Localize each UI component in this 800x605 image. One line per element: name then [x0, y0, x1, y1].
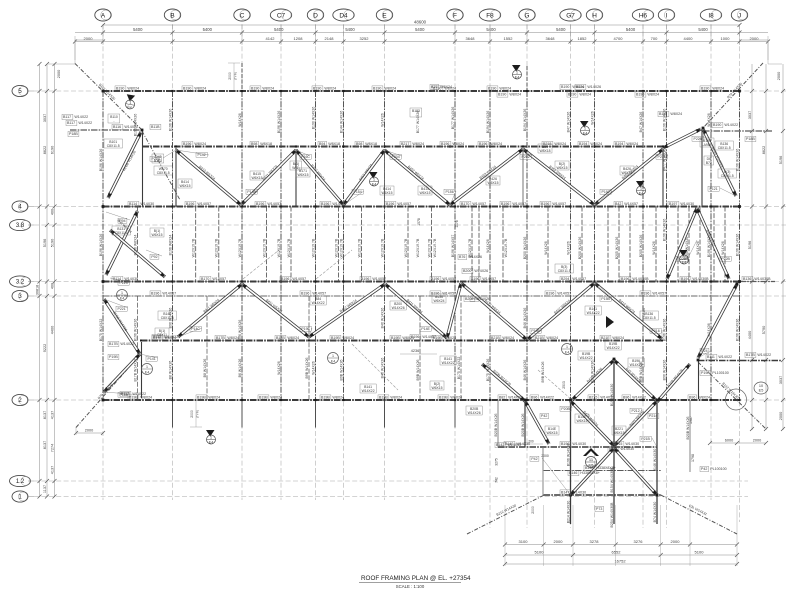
- svg-text:W14X57: W14X57: [212, 277, 226, 281]
- svg-text:P212: P212: [632, 409, 640, 413]
- svg-text:8622: 8622: [762, 146, 766, 154]
- svg-text:W6X15: W6X15: [151, 233, 162, 237]
- svg-text:B194: B194: [579, 142, 587, 146]
- svg-text:P197: P197: [602, 190, 610, 194]
- svg-text:D4: D4: [339, 12, 348, 19]
- svg-text:C8X11.5: C8X11.5: [718, 146, 731, 150]
- svg-text:B9B W14X26: B9B W14X26: [541, 361, 545, 382]
- svg-text:B19B: B19B: [259, 396, 268, 400]
- svg-text:B196 W14X26: B196 W14X26: [133, 114, 137, 137]
- svg-text:W12X19.7B: W12X19.7B: [427, 238, 431, 257]
- svg-text:B196 W14X36: B196 W14X36: [735, 319, 739, 342]
- svg-text:2000: 2000: [541, 454, 549, 458]
- svg-text:W8X18: W8X18: [365, 142, 377, 146]
- svg-text:W14X22: W14X22: [362, 389, 375, 393]
- svg-text:B96 W14X26: B96 W14X26: [238, 320, 242, 341]
- svg-text:W14X26: W14X26: [707, 113, 711, 126]
- svg-text:W14X57: W14X57: [292, 277, 306, 281]
- svg-text:E4: E4: [639, 192, 643, 196]
- svg-text:B46 W14X26: B46 W14X26: [523, 308, 527, 329]
- svg-text:B9B W14X26: B9B W14X26: [339, 359, 343, 380]
- svg-text:8137: 8137: [43, 441, 47, 449]
- svg-text:W8X24: W8X24: [287, 336, 299, 340]
- svg-text:B9B W14X26: B9B W14X26: [416, 359, 420, 380]
- svg-text:1798: 1798: [691, 454, 695, 462]
- svg-text:B196 W14X57: B196 W14X57: [451, 235, 455, 258]
- svg-text:5400: 5400: [486, 27, 496, 32]
- svg-text:B477 W14X26: B477 W14X26: [662, 149, 666, 172]
- svg-text:P204: P204: [392, 155, 400, 159]
- svg-text:B112: B112: [153, 335, 161, 339]
- svg-text:W14X26: W14X26: [468, 255, 482, 259]
- svg-text:I8: I8: [708, 12, 714, 19]
- svg-text:B8 W14X26: B8 W14X26: [168, 361, 172, 380]
- svg-text:B21E: B21E: [601, 336, 610, 340]
- svg-text:1178: 1178: [455, 220, 459, 227]
- svg-text:B205 W14X26: B205 W14X26: [615, 237, 619, 260]
- svg-text:W14X22: W14X22: [757, 353, 771, 357]
- svg-text:W12X19.7B: W12X19.7B: [404, 238, 408, 257]
- svg-text:B111: B111: [707, 355, 715, 359]
- svg-text:W14X26: W14X26: [486, 239, 490, 252]
- svg-text:B196: B196: [321, 202, 329, 206]
- svg-text:W8X24: W8X24: [712, 87, 724, 91]
- svg-text:W14X30: W14X30: [625, 442, 639, 446]
- svg-text:P156: P156: [446, 190, 454, 194]
- svg-text:W14X26: W14X26: [508, 396, 522, 400]
- svg-text:5400: 5400: [203, 27, 213, 32]
- svg-text:W8X24: W8X24: [127, 87, 139, 91]
- svg-text:B8 W14X26: B8 W14X26: [203, 359, 207, 378]
- svg-text:B154 W14X30B: B154 W14X30B: [610, 467, 614, 493]
- svg-text:W8X24: W8X24: [698, 396, 710, 400]
- svg-text:1: 1: [373, 178, 375, 182]
- svg-text:B82: B82: [499, 396, 505, 400]
- svg-text:6190: 6190: [50, 146, 54, 154]
- svg-text:B19B: B19B: [331, 336, 340, 340]
- svg-text:W12X19.7B: W12X19.7B: [192, 238, 196, 257]
- svg-text:B47 W14X26: B47 W14X26: [566, 112, 570, 133]
- svg-text:B190: B190: [701, 87, 709, 91]
- svg-text:3037: 3037: [43, 114, 47, 122]
- svg-text:B194 W14X26: B194 W14X26: [486, 111, 490, 134]
- svg-text:W8X24: W8X24: [554, 142, 566, 146]
- svg-text:4400: 4400: [748, 331, 752, 339]
- svg-text:B196: B196: [576, 85, 584, 89]
- svg-text:W14X22: W14X22: [587, 311, 600, 315]
- svg-text:1: 1: [516, 71, 518, 75]
- svg-text:W6X24: W6X24: [433, 299, 444, 303]
- svg-text:W14X57: W14X57: [572, 277, 586, 281]
- svg-text:8137: 8137: [43, 411, 47, 419]
- svg-text:B197: B197: [669, 202, 677, 206]
- svg-text:W6X15: W6X15: [576, 419, 587, 423]
- svg-text:B74 W14X30: B74 W14X30: [653, 502, 657, 523]
- svg-text:B200 W14X26: B200 W14X26: [578, 237, 582, 260]
- svg-text:3648: 3648: [466, 36, 476, 41]
- svg-text:3278: 3278: [590, 539, 600, 544]
- svg-text:B115: B115: [659, 112, 667, 116]
- svg-text:B196 W14X26: B196 W14X26: [99, 234, 103, 257]
- svg-text:B190: B190: [488, 87, 496, 91]
- svg-text:W14X57: W14X57: [162, 292, 176, 296]
- svg-text:B42: B42: [615, 202, 621, 206]
- svg-text:W8X24: W8X24: [262, 87, 274, 91]
- svg-text:P20B: P20B: [561, 407, 570, 411]
- svg-text:P14E: P14E: [421, 327, 430, 331]
- svg-text:W8X24: W8X24: [440, 85, 452, 89]
- svg-text:W12X19.7B: W12X19.7B: [433, 238, 437, 257]
- svg-text:8622: 8622: [43, 146, 47, 154]
- svg-text:B98: B98: [251, 142, 257, 146]
- svg-text:1137: 1137: [43, 485, 47, 493]
- svg-text:W8X24: W8X24: [670, 112, 682, 116]
- svg-text:1: 1: [584, 127, 586, 131]
- svg-text:W14X22: W14X22: [607, 346, 620, 350]
- svg-text:W8X24: W8X24: [444, 336, 456, 340]
- svg-text:E4: E4: [583, 132, 587, 136]
- svg-text:W14X57: W14X57: [512, 202, 526, 206]
- svg-text:B94: B94: [319, 142, 325, 146]
- svg-text:W14X57: W14X57: [624, 202, 638, 206]
- svg-text:P42: P42: [541, 414, 547, 418]
- svg-text:W8X24: W8X24: [612, 336, 624, 340]
- svg-text:W8X24: W8X24: [412, 142, 424, 146]
- svg-text:B217: B217: [401, 142, 409, 146]
- svg-text:C8X11.5: C8X11.5: [643, 316, 656, 320]
- svg-text:F8: F8: [486, 12, 494, 19]
- svg-text:B190: B190: [373, 87, 381, 91]
- svg-text:B194 W14X26: B194 W14X26: [523, 109, 527, 132]
- svg-text:B196: B196: [479, 142, 487, 146]
- svg-text:P141: P141: [148, 357, 156, 361]
- svg-text:B9B W14X26: B9B W14X26: [305, 357, 309, 378]
- svg-text:B196: B196: [361, 277, 369, 281]
- svg-text:B136: B136: [743, 277, 751, 281]
- svg-text:B21B: B21B: [491, 336, 500, 340]
- svg-text:4137: 4137: [50, 411, 54, 419]
- svg-text:W14X57: W14X57: [332, 202, 346, 206]
- svg-text:E4: E4: [145, 371, 149, 375]
- svg-text:W6X15: W6X15: [381, 191, 392, 195]
- svg-text:W14X30: W14X30: [620, 447, 634, 451]
- svg-text:B96 W14X26: B96 W14X26: [662, 360, 666, 381]
- svg-text:B200: B200: [463, 269, 471, 273]
- svg-text:P221: P221: [118, 307, 126, 311]
- svg-text:C8X11.5: C8X11.5: [115, 231, 128, 235]
- svg-text:B190: B190: [568, 93, 576, 97]
- svg-text:W14X26: W14X26: [238, 113, 242, 126]
- svg-text:B215: B215: [589, 396, 597, 400]
- svg-text:W8X18: W8X18: [328, 142, 340, 146]
- svg-text:2000: 2000: [57, 70, 61, 78]
- svg-text:B196: B196: [256, 202, 264, 206]
- svg-text:W14X57: W14X57: [267, 202, 281, 206]
- svg-text:W14X22: W14X22: [120, 342, 134, 346]
- svg-text:W14X22: W14X22: [132, 392, 146, 396]
- svg-text:B175 W14X22: B175 W14X22: [457, 357, 461, 380]
- svg-text:W8X24: W8X24: [194, 87, 206, 91]
- svg-text:P92: P92: [151, 255, 157, 259]
- svg-text:B196 W14X30: B196 W14X30: [566, 444, 570, 467]
- svg-text:B196 W8X24: B196 W8X24: [168, 235, 172, 256]
- svg-text:W14X22: W14X22: [632, 396, 646, 400]
- svg-text:B11B: B11B: [151, 125, 160, 129]
- svg-text:1: 1: [640, 187, 642, 191]
- svg-text:B47 W14X26: B47 W14X26: [639, 112, 643, 133]
- svg-text:-: -: [113, 119, 114, 123]
- svg-text:B170: B170: [201, 277, 209, 281]
- svg-text:5196: 5196: [748, 241, 752, 249]
- svg-text:W8X24: W8X24: [390, 396, 402, 400]
- svg-text:W14X57: W14X57: [397, 202, 411, 206]
- svg-text:B196 W14X36: B196 W14X36: [662, 319, 666, 342]
- svg-text:G7: G7: [566, 12, 575, 19]
- svg-text:5400: 5400: [274, 27, 284, 32]
- svg-text:5400: 5400: [556, 27, 566, 32]
- svg-text:W6X15: W6X15: [179, 184, 190, 188]
- svg-text:1: 1: [146, 365, 148, 369]
- svg-text:B196 W14X30: B196 W14X30: [610, 384, 614, 407]
- svg-text:C8X11.5: C8X11.5: [107, 144, 120, 148]
- svg-text:W14X30: W14X30: [507, 443, 521, 447]
- svg-text:W14X30: W14X30: [680, 202, 694, 206]
- svg-text:48600: 48600: [414, 19, 427, 24]
- svg-text:400: 400: [50, 283, 54, 289]
- svg-text:B98: B98: [356, 142, 362, 146]
- svg-text:W14X57: W14X57: [442, 277, 456, 281]
- svg-text:B190: B190: [498, 93, 506, 97]
- svg-text:E4: E4: [120, 297, 124, 301]
- svg-text:B17B: B17B: [746, 353, 755, 357]
- svg-text:W6X15: W6X15: [621, 171, 632, 175]
- svg-text:2148: 2148: [325, 36, 335, 41]
- svg-text:(TYP.): (TYP.): [234, 72, 238, 80]
- svg-text:P24: P24: [701, 349, 707, 353]
- svg-text:B177 W14X26: B177 W14X26: [451, 107, 455, 130]
- svg-text:B46 W14X26: B46 W14X26: [380, 308, 384, 329]
- svg-text:B147: B147: [561, 491, 569, 495]
- svg-text:W8X24: W8X24: [490, 142, 502, 146]
- svg-text:3.8: 3.8: [16, 223, 25, 229]
- svg-text:3037: 3037: [748, 111, 752, 119]
- svg-text:P223: P223: [120, 281, 128, 285]
- svg-text:W14X26: W14X26: [474, 269, 488, 273]
- svg-text:B146 W14X30: B146 W14X30: [653, 449, 657, 472]
- svg-text:W8X18: W8X18: [260, 142, 272, 146]
- svg-text:B114: B114: [129, 202, 137, 206]
- svg-text:W14X26: W14X26: [311, 361, 315, 374]
- svg-text:B116: B116: [113, 125, 121, 129]
- svg-text:3252: 3252: [360, 36, 370, 41]
- svg-text:W12X19.7B: W12X19.7B: [277, 238, 281, 257]
- svg-text:E5: E5: [759, 389, 764, 393]
- svg-text:B19: B19: [431, 85, 437, 89]
- svg-text:B72: B72: [706, 161, 712, 165]
- svg-text:B196 W14X26: B196 W14X26: [735, 149, 739, 172]
- svg-text:2000: 2000: [531, 506, 535, 514]
- svg-text:9222: 9222: [43, 344, 47, 352]
- svg-text:W14X26: W14X26: [544, 241, 548, 254]
- svg-text:3276: 3276: [634, 539, 644, 544]
- svg-text:4236: 4236: [411, 349, 419, 353]
- svg-text:W8X24: W8X24: [626, 142, 638, 146]
- svg-text:E: E: [382, 12, 386, 19]
- svg-text:P22B: P22B: [721, 257, 730, 261]
- svg-text:W8X24: W8X24: [450, 396, 462, 400]
- svg-text:PL100100: PL100100: [712, 371, 728, 375]
- svg-text:W8X24: W8X24: [194, 142, 206, 146]
- svg-text:W8X24: W8X24: [502, 336, 514, 340]
- svg-text:B11Z: B11Z: [121, 392, 130, 396]
- svg-text:P15B: P15B: [601, 297, 610, 301]
- svg-text:1552: 1552: [504, 36, 514, 41]
- svg-text:B190: B190: [636, 93, 644, 97]
- svg-text:W8X24: W8X24: [140, 396, 152, 400]
- svg-text:P19B: P19B: [701, 371, 710, 375]
- svg-text:SCALE : 1:100: SCALE : 1:100: [396, 584, 425, 589]
- svg-text:W6X15: W6X15: [297, 173, 308, 177]
- svg-text:B294: B294: [561, 277, 569, 281]
- svg-text:6000: 6000: [725, 439, 733, 443]
- svg-text:W14X22: W14X22: [78, 121, 92, 125]
- svg-text:3100: 3100: [519, 539, 529, 544]
- svg-text:W12X19.7B: W12X19.7B: [339, 238, 343, 257]
- svg-text:B96: B96: [623, 396, 629, 400]
- svg-text:B190: B190: [183, 87, 191, 91]
- svg-text:W14X22: W14X22: [724, 123, 738, 127]
- svg-text:W14X26: W14X26: [277, 361, 281, 374]
- svg-text:5196: 5196: [779, 156, 783, 164]
- svg-text:W8X24: W8X24: [208, 396, 220, 400]
- svg-text:B190: B190: [251, 87, 259, 91]
- svg-text:6552: 6552: [612, 550, 622, 555]
- svg-text:B200 W14X26: B200 W14X26: [685, 237, 689, 260]
- svg-text:B196 W14X26: B196 W14X26: [133, 319, 137, 342]
- svg-text:7274: 7274: [50, 444, 54, 452]
- svg-text:B200 W14X26: B200 W14X26: [523, 237, 527, 260]
- svg-text:W6X15: W6X15: [251, 176, 262, 180]
- svg-text:B19B: B19B: [321, 396, 330, 400]
- svg-text:2000: 2000: [777, 72, 781, 80]
- svg-text:P214: P214: [649, 414, 657, 418]
- svg-text:B205: B205: [465, 297, 473, 301]
- svg-text:B196: B196: [301, 292, 309, 296]
- svg-text:W14X57: W14X57: [197, 202, 211, 206]
- svg-text:W12X19.7B: W12X19.7B: [416, 238, 420, 257]
- svg-text:B214 W14X30: B214 W14X30: [566, 501, 570, 524]
- svg-text:B196: B196: [546, 292, 554, 296]
- svg-text:5790: 5790: [762, 326, 766, 334]
- svg-text:2000: 2000: [190, 410, 194, 418]
- svg-text:E4: E4: [515, 76, 519, 80]
- svg-text:W14X30: W14X30: [572, 442, 586, 446]
- svg-text:W14X57: W14X57: [422, 335, 436, 339]
- svg-text:B17B: B17B: [109, 342, 118, 346]
- svg-text:B170: B170: [461, 202, 469, 206]
- svg-text:W12X19.7B: W12X19.7B: [311, 238, 315, 257]
- svg-text:C7: C7: [277, 12, 286, 19]
- svg-text:B17B: B17B: [276, 336, 285, 340]
- svg-text:W12X19.7B: W12X19.7B: [287, 238, 291, 257]
- svg-text:P216: P216: [652, 329, 660, 333]
- svg-text:E4: E4: [331, 360, 335, 364]
- svg-text:W8X24: W8X24: [384, 87, 396, 91]
- svg-text:B196 W14X26: B196 W14X26: [277, 111, 281, 134]
- svg-text:W6X15: W6X15: [546, 431, 557, 435]
- svg-text:W8X24: W8X24: [270, 396, 282, 400]
- svg-text:B196: B196: [411, 335, 419, 339]
- svg-text:P21B: P21B: [641, 437, 650, 441]
- svg-text:1852: 1852: [578, 36, 588, 41]
- svg-text:3037: 3037: [779, 376, 783, 384]
- svg-text:B144 W14X26: B144 W14X26: [339, 111, 343, 134]
- svg-text:W12X19.7B: W12X19.7B: [215, 238, 219, 257]
- svg-text:W8X24: W8X24: [590, 142, 602, 146]
- svg-text:W14X26: W14X26: [468, 411, 481, 415]
- svg-text:B21B: B21B: [535, 336, 544, 340]
- svg-text:W14X26: W14X26: [696, 241, 700, 254]
- svg-text:2000: 2000: [671, 539, 681, 544]
- svg-text:W14X22: W14X22: [580, 356, 593, 360]
- svg-text:B20B W14X26: B20B W14X26: [494, 413, 498, 436]
- svg-text:W14X22: W14X22: [164, 335, 178, 339]
- svg-text:1578: 1578: [417, 218, 421, 226]
- svg-text:H338X8X8+: H338X8X8+: [580, 471, 599, 475]
- svg-text:B194: B194: [681, 277, 689, 281]
- svg-text:B19B: B19B: [391, 336, 400, 340]
- svg-text:B17B W14X22: B17B W14X22: [133, 358, 137, 381]
- svg-text:P42: P42: [701, 467, 707, 471]
- svg-text:C8X11.5: C8X11.5: [721, 174, 734, 178]
- svg-text:4137: 4137: [50, 466, 54, 474]
- svg-text:400: 400: [50, 209, 54, 215]
- svg-text:3.2: 3.2: [16, 280, 25, 286]
- svg-text:B96: B96: [531, 396, 537, 400]
- svg-text:ROOF FRAMING PLAN @ EL. +27354: ROOF FRAMING PLAN @ EL. +27354: [361, 575, 471, 582]
- svg-text:E4: E4: [209, 441, 213, 445]
- svg-text:B254 W14X30B: B254 W14X30B: [610, 502, 614, 528]
- svg-text:5400: 5400: [698, 27, 708, 32]
- svg-text:W14X22: W14X22: [74, 115, 88, 119]
- svg-text:B196 W8X24: B196 W8X24: [133, 235, 137, 256]
- svg-text:B205 W14X26: B205 W14X26: [639, 235, 643, 258]
- svg-text:W14X26: W14X26: [652, 241, 656, 254]
- svg-text:B196: B196: [621, 277, 629, 281]
- svg-text:1.2: 1.2: [16, 479, 25, 485]
- svg-text:W8X24: W8X24: [579, 93, 591, 97]
- svg-text:W14X57: W14X57: [472, 202, 486, 206]
- svg-text:D: D: [313, 12, 318, 19]
- svg-text:B19B: B19B: [379, 396, 388, 400]
- svg-text:H: H: [592, 12, 597, 19]
- svg-text:W12X19.7B: W12X19.7B: [357, 238, 361, 257]
- svg-text:PL100100: PL100100: [710, 467, 726, 471]
- svg-text:5196: 5196: [43, 239, 47, 247]
- svg-text:B76: B76: [459, 255, 465, 259]
- svg-text:H6: H6: [639, 12, 648, 19]
- svg-text:(TYP.): (TYP.): [196, 410, 200, 418]
- svg-text:10: 10: [759, 384, 763, 388]
- svg-text:C8X11.5: C8X11.5: [558, 269, 571, 273]
- svg-text:B196 W14X26: B196 W14X26: [662, 219, 666, 242]
- svg-text:W12X19.7B: W12X19.7B: [504, 238, 508, 257]
- svg-text:P121: P121: [710, 187, 718, 191]
- svg-text:W14X30B: W14X30B: [632, 277, 649, 281]
- svg-text:2503: 2503: [562, 381, 566, 389]
- svg-text:W14X26: W14X26: [476, 297, 490, 301]
- svg-text:C8X11.5: C8X11.5: [157, 171, 170, 175]
